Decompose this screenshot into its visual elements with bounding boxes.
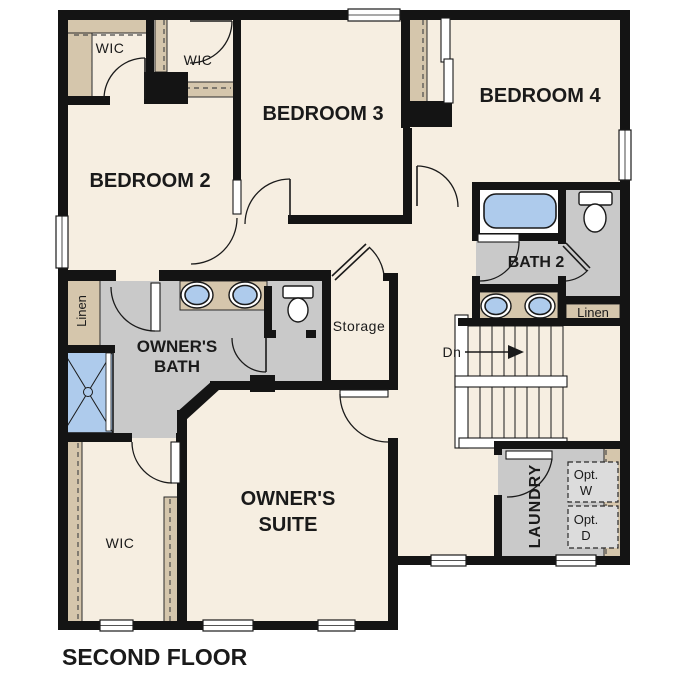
window-top xyxy=(348,9,400,21)
storage-label: Storage xyxy=(333,318,386,334)
owners-suite-label-line1: OWNER'S xyxy=(241,488,336,510)
opt-dryer-label-line2: D xyxy=(581,528,590,543)
wic-bedroom2-label: WIC xyxy=(96,40,125,56)
bedroom3-label: BEDROOM 3 xyxy=(262,103,383,125)
linen-bath2-label: Linen xyxy=(577,305,609,320)
window-hall-bottom xyxy=(431,555,466,566)
opt-washer-label-line1: Opt. xyxy=(574,467,599,482)
stair-landing-band xyxy=(455,376,567,387)
floor-title: SECOND FLOOR xyxy=(62,644,248,670)
linen-owners-label: Linen xyxy=(74,295,89,327)
wic2-closet-shelf xyxy=(183,82,235,97)
owners-bath-label-line2: BATH xyxy=(154,357,200,376)
wic1-closet-top xyxy=(66,18,150,33)
floorplan-page: WIC WIC BEDROOM 2 BEDROOM 3 BEDROOM 4 BA… xyxy=(0,0,687,687)
window-laundry-bottom xyxy=(556,555,596,566)
stairs-dn-label: Dn xyxy=(443,344,462,360)
bedroom2-label: BEDROOM 2 xyxy=(89,170,210,192)
bedroom4-label: BEDROOM 4 xyxy=(479,85,601,107)
bathtub-icon xyxy=(484,194,556,228)
bedroom4-closet xyxy=(408,18,427,103)
floorplan-drawing: WIC WIC BEDROOM 2 BEDROOM 3 BEDROOM 4 BA… xyxy=(0,0,687,687)
window-suite-bottom-2 xyxy=(318,620,355,631)
wic-owners-label: WIC xyxy=(106,535,135,551)
owners-suite-label-line2: SUITE xyxy=(259,514,318,536)
wic2-closet-side xyxy=(155,18,167,72)
opt-washer-label-line2: W xyxy=(580,483,593,498)
owners-wic-strip-left xyxy=(66,441,82,624)
window-bedroom2 xyxy=(56,216,68,268)
owners-wic-strip-right xyxy=(164,497,178,624)
window-suite-bottom-1 xyxy=(203,620,253,631)
shower-icon xyxy=(63,351,113,433)
owners-bath-label-line1: OWNER'S xyxy=(137,337,218,356)
window-wic-bottom xyxy=(100,620,133,631)
opt-dryer-label-line1: Opt. xyxy=(574,512,599,527)
wic-bedroom3-label: WIC xyxy=(184,52,213,68)
bath2-label: BATH 2 xyxy=(508,254,565,271)
window-bedroom4 xyxy=(619,130,631,180)
laundry-label: LAUNDRY xyxy=(527,464,544,549)
